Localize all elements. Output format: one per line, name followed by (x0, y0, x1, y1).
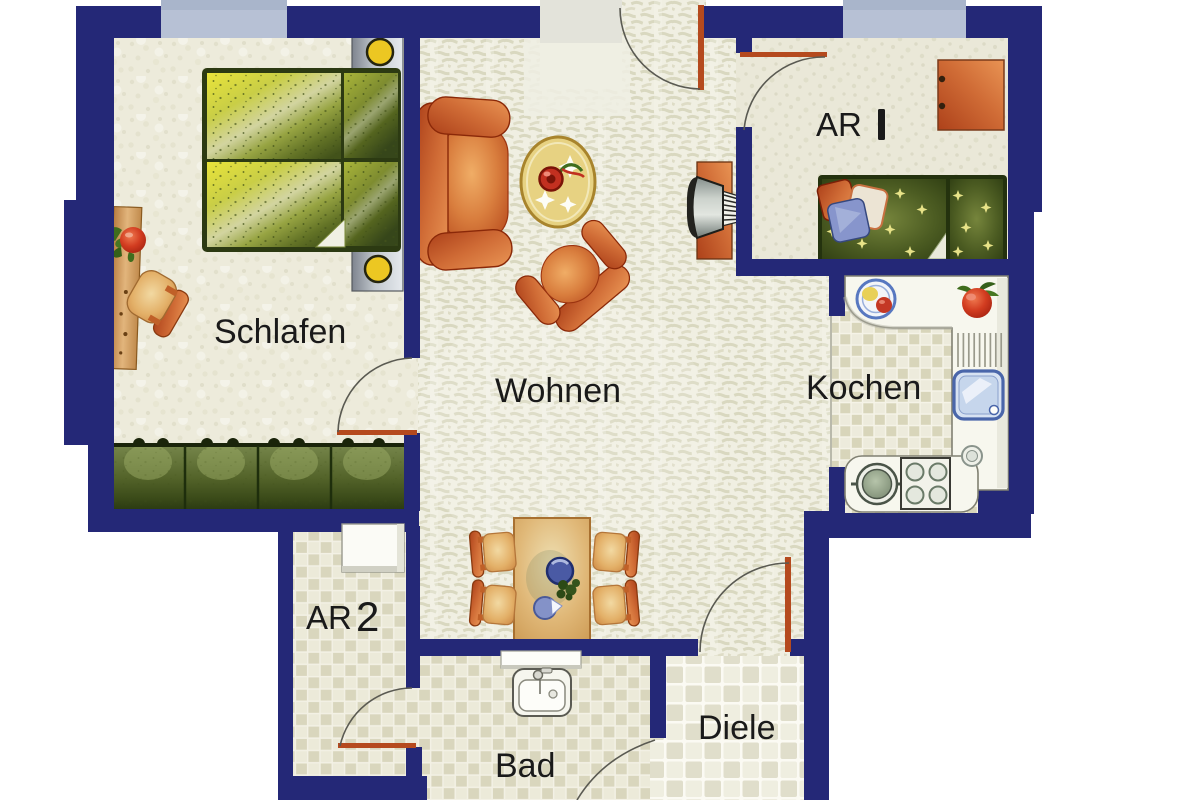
svg-text:AR: AR (816, 106, 862, 143)
svg-text:Diele: Diele (698, 709, 775, 747)
svg-text:Schlafen: Schlafen (214, 313, 346, 351)
svg-text:2: 2 (356, 593, 379, 640)
svg-text:AR: AR (306, 599, 352, 636)
svg-text:Bad: Bad (495, 747, 556, 785)
svg-text:Kochen: Kochen (806, 369, 921, 407)
svg-text:Wohnen: Wohnen (495, 372, 621, 410)
